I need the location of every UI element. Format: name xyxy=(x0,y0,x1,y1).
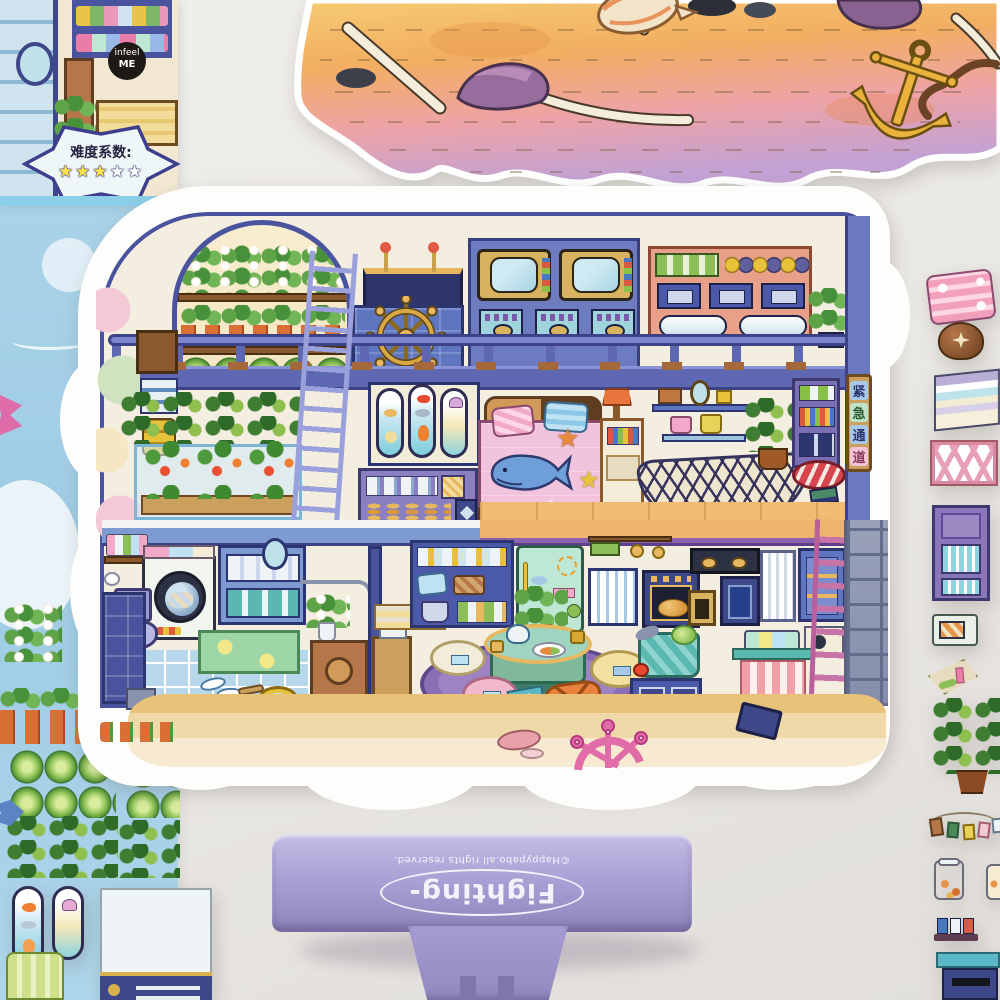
calendar-stand xyxy=(934,934,978,941)
tile-diamond xyxy=(460,506,474,520)
mushroom-sticker xyxy=(938,322,984,364)
pillow-pink xyxy=(491,404,536,438)
fridge-magnet-ball xyxy=(567,604,581,618)
clip-copyright-text: ©Happypabo.all rights reserved. xyxy=(394,854,570,865)
pantry-pillow xyxy=(416,571,448,596)
garland-frame xyxy=(991,818,1000,834)
calendar-card xyxy=(937,918,948,934)
fish-doodle xyxy=(531,576,547,585)
jar-sticker xyxy=(934,860,964,900)
monitor-screen xyxy=(490,257,538,293)
railing-bar xyxy=(108,334,860,346)
drawer xyxy=(761,283,805,309)
fish-icon xyxy=(415,409,430,417)
pantry-row xyxy=(417,547,507,567)
capsule-tank xyxy=(408,384,436,458)
drawer-line xyxy=(606,455,640,481)
middle-wood-floor xyxy=(480,502,868,522)
fridge-doodle xyxy=(557,556,577,576)
greens-row xyxy=(120,392,300,444)
capsule-tank xyxy=(440,388,468,458)
jellyfish-icon xyxy=(449,397,463,408)
green-box xyxy=(590,542,620,556)
lever-knob xyxy=(380,242,391,253)
monitor-buttons xyxy=(542,258,550,292)
garland-frame xyxy=(946,822,959,839)
plant-sticker-large xyxy=(932,698,1000,774)
basket-cabbage xyxy=(671,625,697,645)
sign-char: 通 xyxy=(850,425,868,444)
clip-brand-text: Fighting- xyxy=(408,877,555,908)
dresser-carving xyxy=(325,657,353,685)
microwave-window xyxy=(939,621,965,639)
jar-lid xyxy=(938,858,960,866)
pantry-basket xyxy=(453,575,485,595)
sign-char: 紧 xyxy=(850,381,868,400)
photo-frames xyxy=(799,433,835,457)
cutting-board-sticker xyxy=(927,658,980,696)
flip-calendar-sticker xyxy=(934,916,978,942)
difficulty-stars: ★★★★★ xyxy=(22,162,180,182)
top-left-sticker-sheet: infeel ME 难度系数: ★★★★★ xyxy=(0,0,178,206)
lime-fence-sticker xyxy=(6,952,64,1000)
cabinet-shutter xyxy=(941,544,981,574)
koi-icon xyxy=(418,425,429,441)
striped-radiator xyxy=(588,568,638,626)
storage-shelf xyxy=(648,246,812,340)
pantry-canisters xyxy=(457,601,507,623)
laundry xyxy=(169,592,193,608)
jar-sticker-partial xyxy=(986,864,1000,900)
meal-plate xyxy=(532,642,566,658)
calendar-card xyxy=(950,918,961,934)
panel-switches xyxy=(541,314,575,321)
lattice-fence-sticker xyxy=(932,442,996,484)
pink-stone xyxy=(520,748,544,759)
table-body xyxy=(942,968,998,1000)
table-plant xyxy=(514,586,568,628)
calendar-card xyxy=(963,918,974,934)
microwave-window xyxy=(695,599,709,619)
black-pebble xyxy=(744,2,776,18)
cushion-tag xyxy=(613,666,631,676)
stars-empty: ★★ xyxy=(110,162,144,182)
badge-text-top: infeel xyxy=(108,49,146,59)
monitor-buttons xyxy=(624,258,632,292)
emergency-sign: 紧 急 通 道 xyxy=(846,374,872,472)
mirror-icon xyxy=(16,42,54,86)
stone-wall xyxy=(844,520,888,706)
drawer-panel xyxy=(667,290,693,304)
garland-frame xyxy=(962,824,975,841)
stars-filled: ★★★ xyxy=(58,162,110,182)
mattress-stack-sticker xyxy=(934,369,1000,432)
board-steps xyxy=(136,980,200,1000)
plant-sticker-pot xyxy=(954,770,990,794)
round-table-top xyxy=(484,624,592,664)
purple-cabinet-sticker xyxy=(932,505,990,601)
roast-chicken-icon xyxy=(658,599,688,617)
whiteboard-base xyxy=(100,972,212,1000)
lamp-base xyxy=(613,406,620,418)
wall-cabinet xyxy=(136,330,178,374)
bookshelf xyxy=(792,378,840,468)
monitor xyxy=(477,249,551,301)
pantry-shelf xyxy=(410,540,514,628)
burner-icon xyxy=(731,557,747,569)
canister-row xyxy=(655,253,719,277)
tomato-plants xyxy=(141,441,297,499)
panel-switches xyxy=(485,314,519,321)
burner-icon xyxy=(701,557,717,569)
capsule-tank xyxy=(376,388,404,458)
mug-yellow xyxy=(700,414,722,434)
honey-jar xyxy=(490,640,504,653)
stove-top xyxy=(690,548,760,574)
cabinet-window xyxy=(728,585,752,619)
flower-plant-sticker xyxy=(4,604,62,662)
board-veg xyxy=(938,678,957,690)
washer-towels xyxy=(143,545,215,559)
badge-text-bottom: ME xyxy=(108,59,146,70)
drawer xyxy=(709,283,753,309)
fish-icon xyxy=(385,431,397,443)
whiteboard-sticker xyxy=(100,888,212,1000)
starfish-icon: ★ xyxy=(578,466,600,494)
monitor xyxy=(559,249,633,301)
microwave-gold xyxy=(688,590,716,626)
seabed-sticker xyxy=(240,0,1000,205)
toiletry-bottles xyxy=(106,534,148,556)
lever-knob xyxy=(428,242,439,253)
cabinet-top-door xyxy=(941,513,981,539)
shelf-frames xyxy=(799,385,835,401)
flower-vase xyxy=(318,622,336,642)
knob-icon xyxy=(108,984,120,996)
pillow-floral-sticker xyxy=(925,268,997,326)
cabinet-shutter xyxy=(941,578,981,596)
plant-cup xyxy=(716,390,732,404)
tomato-planter xyxy=(134,444,302,520)
clip-brand-oval: Fighting- xyxy=(380,869,583,916)
pot-cabinet xyxy=(720,576,760,626)
sand-blotch xyxy=(430,22,550,58)
bath-mat xyxy=(198,630,300,674)
leafy-plant-sticker xyxy=(6,816,118,878)
sand-carrots xyxy=(100,722,178,742)
basket-tomato xyxy=(633,663,649,677)
striped-panel xyxy=(760,550,796,622)
large-plant-pot xyxy=(758,448,788,470)
book-spines xyxy=(799,407,835,427)
photo-garland-sticker xyxy=(928,810,1000,852)
clip-text-group: Fighting- ©Happypabo.all rights reserved… xyxy=(362,842,602,928)
starfish-icon: ★ xyxy=(556,424,579,454)
oven-knobs xyxy=(651,576,691,582)
lamp-shade-icon xyxy=(602,388,632,406)
goldfish-icon xyxy=(417,395,430,403)
fish-icon xyxy=(384,409,397,417)
sign-char: 急 xyxy=(850,403,868,422)
floor-cushion-cream xyxy=(430,640,486,676)
tissue-box xyxy=(658,388,682,404)
product-photo-scene: infeel ME 难度系数: ★★★★★ xyxy=(0,0,1000,1000)
garland-frame xyxy=(929,817,944,837)
mug-pink xyxy=(670,416,692,434)
drawer-panel xyxy=(719,290,745,304)
drawer-panel xyxy=(771,290,797,304)
mustard-cup xyxy=(570,630,585,644)
floor-band-2-right xyxy=(480,520,868,546)
teal-table-sticker xyxy=(936,950,1000,1000)
oval-mirror-icon xyxy=(262,538,288,570)
fish-icon xyxy=(21,921,36,929)
round-cushion xyxy=(792,460,846,490)
book-spines xyxy=(607,427,639,445)
black-pebble xyxy=(336,68,376,88)
table-top xyxy=(936,952,1000,968)
clip-notch xyxy=(460,976,476,1000)
toilet-paper-icon xyxy=(104,572,120,586)
board-bottle xyxy=(955,667,964,684)
brand-badge: infeel ME xyxy=(108,42,146,80)
meal-food xyxy=(540,647,560,655)
drawer xyxy=(657,283,701,309)
pantry-pot xyxy=(421,601,449,623)
teapot-icon xyxy=(506,624,530,644)
garland-frame xyxy=(977,821,991,838)
clip-stem xyxy=(408,926,568,1000)
buried-wheel-icon xyxy=(562,718,654,780)
railing-feet xyxy=(104,362,856,370)
clip-notch xyxy=(498,976,514,1000)
shelf-items xyxy=(76,6,168,26)
difficulty-label: 难度系数: xyxy=(22,142,180,162)
koi-icon xyxy=(23,939,35,953)
capsule-tank-sticker xyxy=(52,886,84,960)
snack-cabinet xyxy=(358,468,478,526)
ladle-icon xyxy=(630,544,644,558)
panel-switches xyxy=(597,314,631,321)
monitor-screen xyxy=(572,257,620,293)
microwave-sticker xyxy=(932,614,978,646)
teal-towels xyxy=(226,588,300,618)
oven-window xyxy=(650,585,692,621)
ladle-icon xyxy=(652,546,665,559)
sign-char: 道 xyxy=(850,447,868,466)
washer-porthole xyxy=(154,571,206,623)
jellyfish-icon xyxy=(62,899,77,911)
wall-shelf xyxy=(662,434,746,442)
table-slot xyxy=(952,978,990,986)
goldfish-icon xyxy=(22,903,36,912)
veggie-basket xyxy=(638,632,700,678)
cushion-tag xyxy=(451,655,469,665)
leafy-plant-sticker xyxy=(118,820,180,878)
table-mirror-icon xyxy=(690,380,710,406)
washer-buttons xyxy=(157,627,181,635)
jar-row xyxy=(366,476,438,496)
gear-row-icon xyxy=(725,253,809,277)
side-table-pinkcloth xyxy=(732,648,814,660)
purple-clip: Fighting- ©Happypabo.all rights reserved… xyxy=(272,834,692,1000)
waffle-jars xyxy=(441,475,465,499)
